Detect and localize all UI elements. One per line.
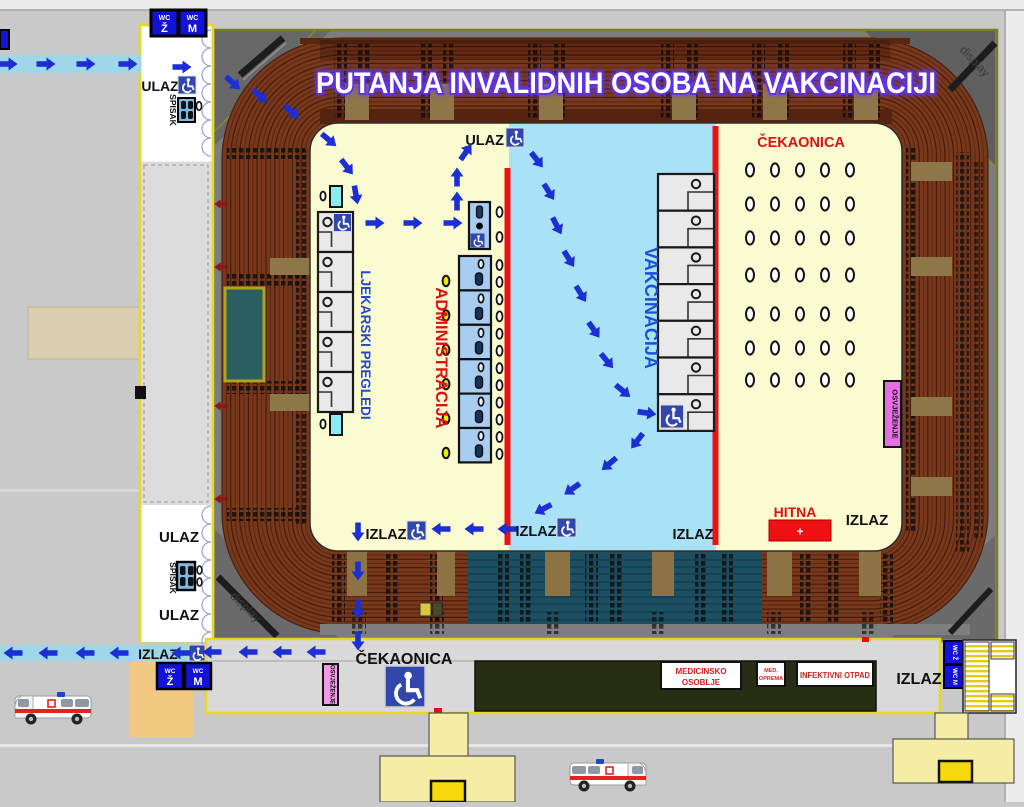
svg-text:+: + bbox=[796, 525, 803, 539]
svg-text:INFEKTIVNI OTPAD: INFEKTIVNI OTPAD bbox=[800, 670, 870, 680]
svg-text:WC: WC bbox=[187, 15, 199, 22]
svg-text:M: M bbox=[193, 676, 202, 688]
svg-text:IZLAZ: IZLAZ bbox=[672, 527, 713, 543]
svg-text:WC: WC bbox=[159, 15, 171, 22]
svg-text:OSVJEŽENJE: OSVJEŽENJE bbox=[891, 389, 900, 438]
svg-text:Ž: Ž bbox=[161, 22, 168, 35]
svg-text:Ž: Ž bbox=[167, 675, 174, 688]
svg-text:OPREMA: OPREMA bbox=[759, 676, 783, 682]
svg-text:WC M: WC M bbox=[951, 668, 957, 685]
svg-text:WC Ž: WC Ž bbox=[951, 645, 959, 661]
svg-text:VAKCINACIJA: VAKCINACIJA bbox=[641, 247, 661, 369]
svg-text:ČEKAONICA: ČEKAONICA bbox=[356, 649, 453, 668]
svg-text:IZLAZ: IZLAZ bbox=[896, 671, 942, 688]
svg-text:IZLAZ: IZLAZ bbox=[846, 512, 889, 529]
svg-text:ULAZ: ULAZ bbox=[141, 78, 179, 94]
svg-text:OSOBLJE: OSOBLJE bbox=[682, 678, 721, 687]
svg-text:IZLAZ: IZLAZ bbox=[138, 646, 178, 662]
svg-text:IZLAZ: IZLAZ bbox=[515, 524, 556, 540]
svg-text:SPISAK: SPISAK bbox=[168, 94, 178, 127]
svg-text:PUTANJA INVALIDNIH OSOBA NA VA: PUTANJA INVALIDNIH OSOBA NA VAKCINACIJI bbox=[316, 67, 936, 100]
svg-text:WC: WC bbox=[165, 668, 176, 675]
svg-text:IZLAZ: IZLAZ bbox=[365, 527, 406, 543]
svg-text:M: M bbox=[188, 23, 197, 35]
svg-text:ULAZ: ULAZ bbox=[159, 529, 199, 546]
svg-text:MED.: MED. bbox=[764, 668, 778, 674]
svg-text:MEDICINSKO: MEDICINSKO bbox=[675, 667, 726, 676]
svg-text:WC: WC bbox=[193, 668, 204, 675]
svg-text:ULAZ: ULAZ bbox=[159, 607, 199, 624]
svg-text:ČEKAONICA: ČEKAONICA bbox=[757, 133, 845, 151]
svg-text:LJEKARSKI PREGLEDI: LJEKARSKI PREGLEDI bbox=[358, 270, 373, 419]
svg-text:HITNA: HITNA bbox=[774, 504, 817, 520]
svg-text:ADMINISTRACIJA: ADMINISTRACIJA bbox=[432, 287, 450, 428]
svg-text:OSVJEŽENJE: OSVJEŽENJE bbox=[329, 665, 337, 704]
